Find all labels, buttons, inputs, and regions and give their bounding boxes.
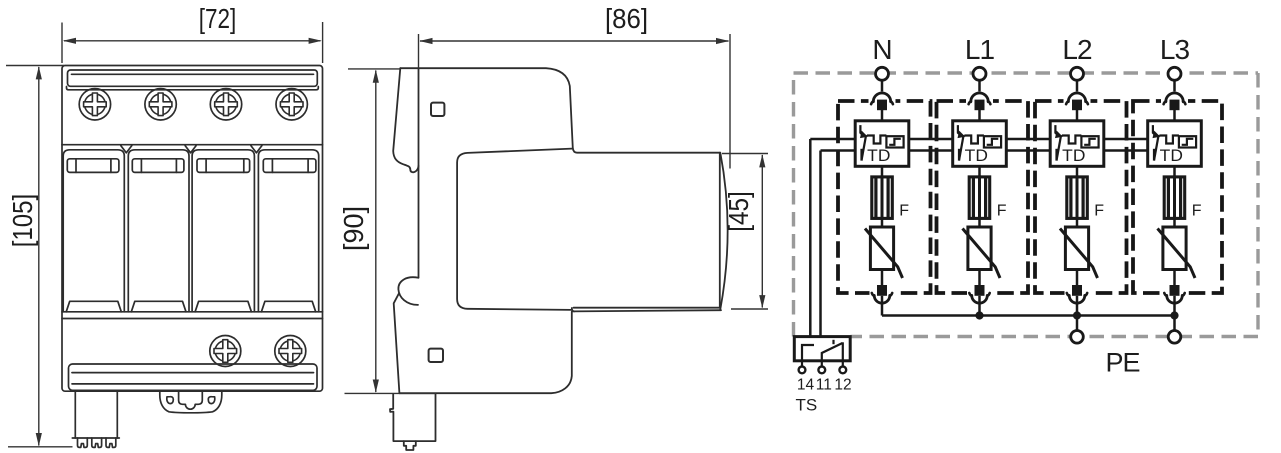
- svg-text:F: F: [1192, 203, 1202, 220]
- svg-text:F: F: [1094, 203, 1104, 220]
- svg-text:[72]: [72]: [199, 3, 237, 34]
- svg-text:PE: PE: [1105, 348, 1139, 378]
- svg-text:N: N: [872, 34, 891, 65]
- svg-text:L1: L1: [965, 34, 995, 65]
- svg-text:TD: TD: [965, 147, 988, 165]
- svg-text:TS: TS: [796, 396, 818, 415]
- svg-text:F: F: [899, 203, 909, 220]
- svg-text:L2: L2: [1062, 34, 1092, 65]
- svg-text:14: 14: [797, 377, 815, 394]
- svg-text:11: 11: [816, 377, 832, 394]
- svg-text:TD: TD: [867, 147, 890, 165]
- svg-text:[45]: [45]: [723, 191, 754, 232]
- svg-text:[90]: [90]: [338, 206, 369, 251]
- svg-text:12: 12: [834, 377, 851, 394]
- svg-text:[86]: [86]: [605, 3, 648, 34]
- svg-text:[105]: [105]: [7, 194, 38, 248]
- svg-text:F: F: [997, 203, 1007, 220]
- svg-text:TD: TD: [1062, 147, 1085, 165]
- svg-text:TD: TD: [1160, 147, 1183, 165]
- svg-text:L3: L3: [1160, 34, 1190, 65]
